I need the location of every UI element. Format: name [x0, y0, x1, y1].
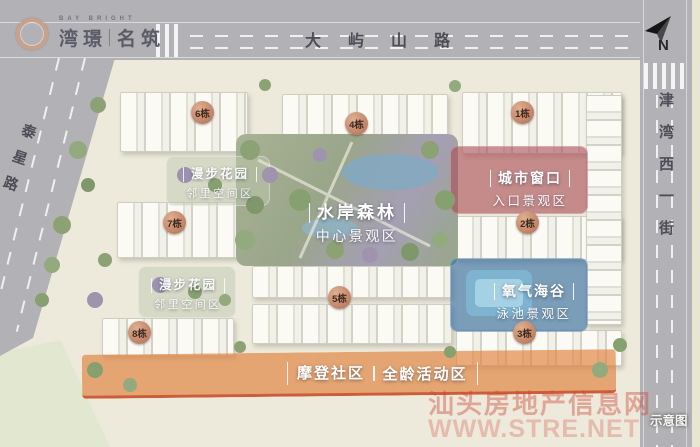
compass-north-label: N [658, 37, 669, 54]
zone-garden-upper [166, 156, 270, 206]
building-badge-1: 1栋 [511, 101, 534, 124]
logo-name-left: 湾璟 [59, 24, 107, 51]
north-arrow-icon [638, 12, 676, 46]
badge-label: 5栋 [332, 291, 347, 305]
road-name-top: 大屿山路 [305, 27, 477, 51]
building-block [120, 92, 248, 152]
schematic-note: 示意图 [650, 410, 688, 429]
crosswalk [644, 63, 688, 89]
building-block [252, 266, 452, 298]
logo-name: 湾璟 名筑 [59, 24, 165, 51]
logo-tagline: BAY BRIGHT [59, 16, 165, 22]
road-name-right: 津湾西一街 [655, 92, 676, 252]
roadside-strip [692, 0, 700, 447]
logo-name-right: 名筑 [117, 24, 165, 51]
building-badge-7: 7栋 [163, 211, 186, 234]
badge-label: 4栋 [349, 117, 364, 131]
brand-logo: BAY BRIGHT 湾璟 名筑 [16, 16, 165, 51]
badge-label: 1栋 [515, 106, 530, 120]
road-name-left: 泰星路 [0, 121, 40, 206]
badge-label: 2栋 [520, 216, 535, 230]
building-badge-3: 3栋 [513, 321, 536, 344]
building-badge-8: 8栋 [128, 321, 151, 344]
badge-label: 7栋 [167, 216, 182, 230]
building-block [252, 304, 452, 344]
site-plan-map: 泰星路 大屿山路 津湾西一街 [0, 0, 700, 447]
building-block [102, 318, 234, 356]
zone-garden-lower [138, 266, 236, 318]
building-badge-2: 2栋 [516, 211, 539, 234]
zone-entrance [450, 146, 588, 214]
compass: N [638, 12, 682, 56]
badge-label: 3栋 [517, 326, 532, 340]
building-block [586, 95, 622, 325]
badge-label: 8栋 [132, 326, 147, 340]
road-edge-line [0, 57, 700, 58]
building-badge-6: 6栋 [191, 101, 214, 124]
building-badge-4: 4栋 [345, 112, 368, 135]
badge-label: 6栋 [195, 106, 210, 120]
logo-ring-icon [16, 18, 48, 50]
logo-separator [109, 29, 110, 46]
zone-pool [450, 258, 588, 332]
building-badge-5: 5栋 [328, 286, 351, 309]
zone-community-strip [82, 349, 616, 399]
logo-text: BAY BRIGHT 湾璟 名筑 [59, 16, 165, 51]
lane-dash [16, 58, 86, 332]
